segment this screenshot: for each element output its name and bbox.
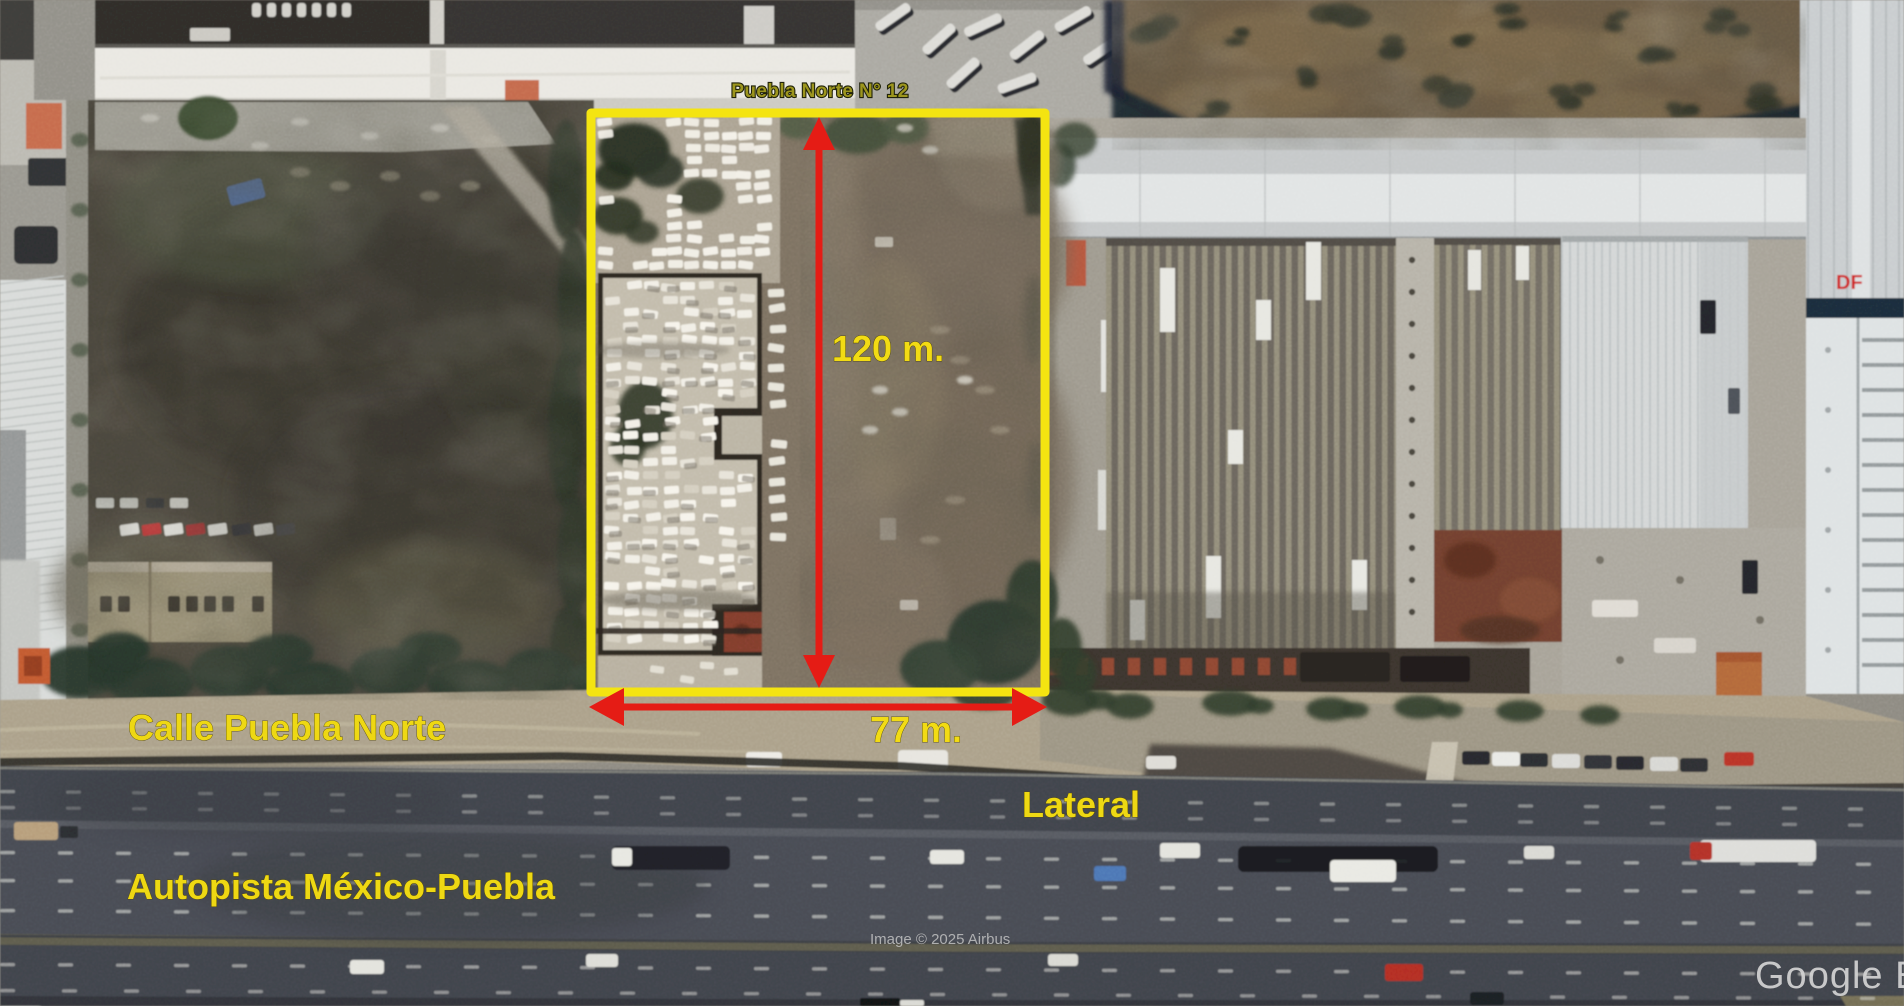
svg-text:77 m.: 77 m. bbox=[870, 709, 962, 750]
svg-text:Lateral: Lateral bbox=[1022, 784, 1140, 825]
svg-text:Calle Puebla Norte: Calle Puebla Norte bbox=[128, 707, 446, 748]
svg-text:120 m.: 120 m. bbox=[832, 328, 944, 369]
svg-text:Puebla Norte N° 12: Puebla Norte N° 12 bbox=[731, 81, 908, 102]
svg-text:Image © 2025 Airbus: Image © 2025 Airbus bbox=[870, 931, 1010, 948]
svg-text:Autopista México-Puebla: Autopista México-Puebla bbox=[127, 866, 556, 907]
svg-text:Google Ea: Google Ea bbox=[1755, 955, 1904, 997]
